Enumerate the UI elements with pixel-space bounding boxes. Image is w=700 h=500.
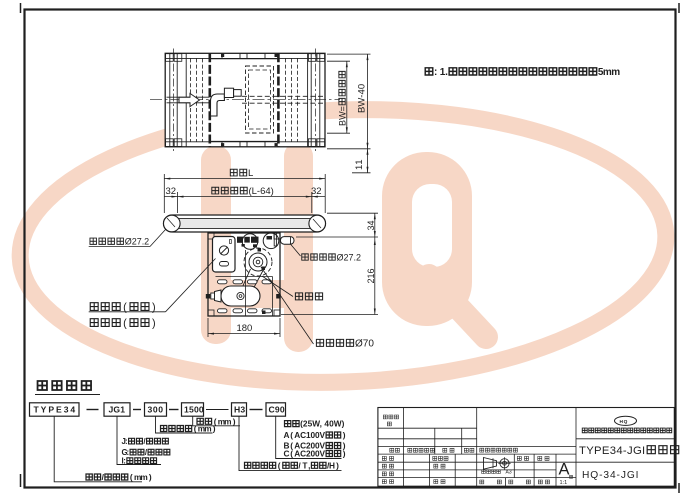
svg-text:34: 34 <box>366 221 376 231</box>
svg-text:TYPE34: TYPE34 <box>34 405 78 415</box>
svg-text:300: 300 <box>148 405 164 415</box>
svg-text:HQ-34-JGI: HQ-34-JGI <box>582 470 640 481</box>
svg-text:/H: /H <box>327 460 335 470</box>
svg-text:/T,: /T, <box>298 460 310 470</box>
svg-text:Ø27.2: Ø27.2 <box>125 237 150 247</box>
svg-text:1500: 1500 <box>184 405 204 415</box>
svg-text:(: ( <box>278 460 281 470</box>
svg-text:Ø27.2: Ø27.2 <box>337 252 362 262</box>
svg-text:216: 216 <box>366 269 376 284</box>
svg-text:Ø70: Ø70 <box>355 339 374 350</box>
svg-text:): ) <box>336 460 339 470</box>
svg-text:(: ( <box>214 416 217 426</box>
svg-text:(: ( <box>290 449 293 459</box>
svg-text:180: 180 <box>237 323 253 334</box>
svg-text:): ) <box>233 416 236 426</box>
svg-text:): ) <box>343 430 346 440</box>
svg-text:H3: H3 <box>234 405 246 415</box>
svg-text:H Q: H Q <box>620 419 628 425</box>
svg-text:(25W, 40W): (25W, 40W) <box>300 419 345 429</box>
svg-text:I:: I: <box>122 457 126 466</box>
svg-text:(: ( <box>290 430 293 440</box>
svg-text:JG1: JG1 <box>109 405 126 415</box>
svg-text:A3: A3 <box>506 470 512 476</box>
svg-text:AC100V: AC100V <box>294 430 325 440</box>
svg-text:): ) <box>152 318 156 330</box>
svg-text:mm: mm <box>218 416 232 426</box>
svg-text:A: A <box>559 461 570 479</box>
svg-text:TYPE34-JGI: TYPE34-JGI <box>579 445 646 457</box>
svg-text:): ) <box>149 472 152 482</box>
svg-text:(: ( <box>194 424 197 434</box>
svg-text:32: 32 <box>166 186 177 197</box>
svg-text:32: 32 <box>311 186 322 197</box>
svg-text:: 1.: : 1. <box>434 67 448 78</box>
svg-text:BW-40: BW-40 <box>356 84 367 113</box>
svg-text:(: ( <box>123 318 127 330</box>
svg-text:5mm: 5mm <box>598 67 620 78</box>
svg-text:C90: C90 <box>269 405 286 415</box>
svg-text:mm: mm <box>198 424 212 434</box>
svg-text:): ) <box>343 449 346 459</box>
svg-text:A: A <box>284 430 290 440</box>
svg-text:C: C <box>284 449 290 459</box>
svg-text:(L-64): (L-64) <box>249 186 274 197</box>
svg-text:AC200V: AC200V <box>294 449 325 459</box>
svg-text:11: 11 <box>354 159 365 170</box>
svg-text:L: L <box>248 168 253 179</box>
svg-text:mm: mm <box>134 472 148 482</box>
svg-text:1:1: 1:1 <box>560 480 568 486</box>
svg-text:BW=: BW= <box>337 106 347 126</box>
svg-text:J:: J: <box>122 437 128 446</box>
svg-text:(: ( <box>130 472 133 482</box>
